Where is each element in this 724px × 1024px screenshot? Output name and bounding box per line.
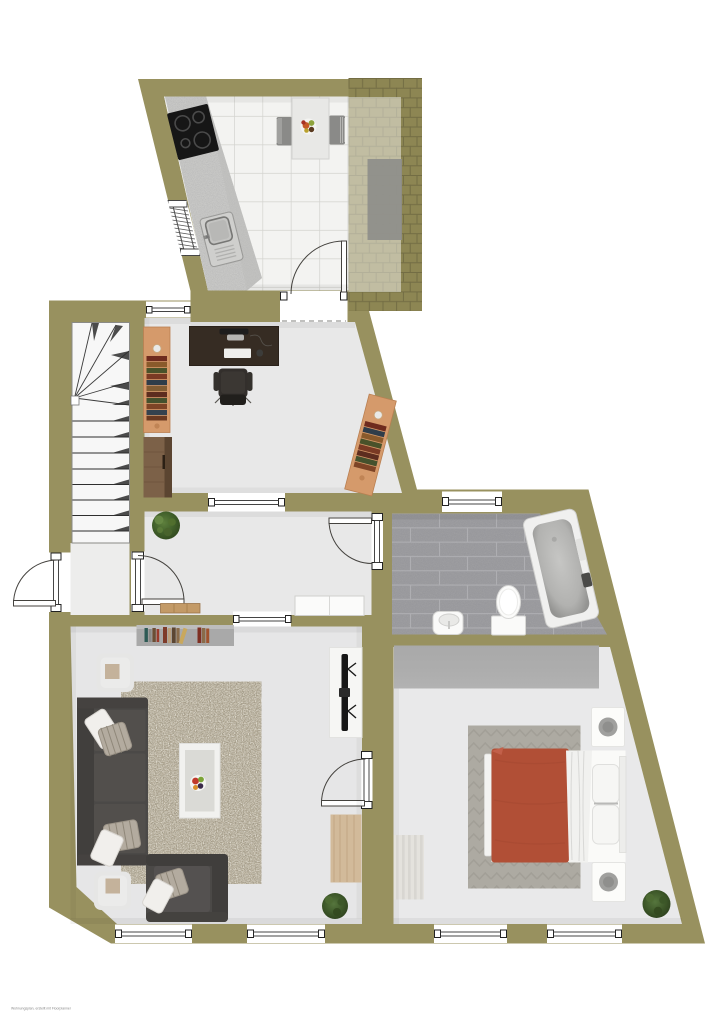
svg-text:Wohnungsplan, erstellt mit Flo: Wohnungsplan, erstellt mit Floorplanner	[11, 1007, 72, 1011]
